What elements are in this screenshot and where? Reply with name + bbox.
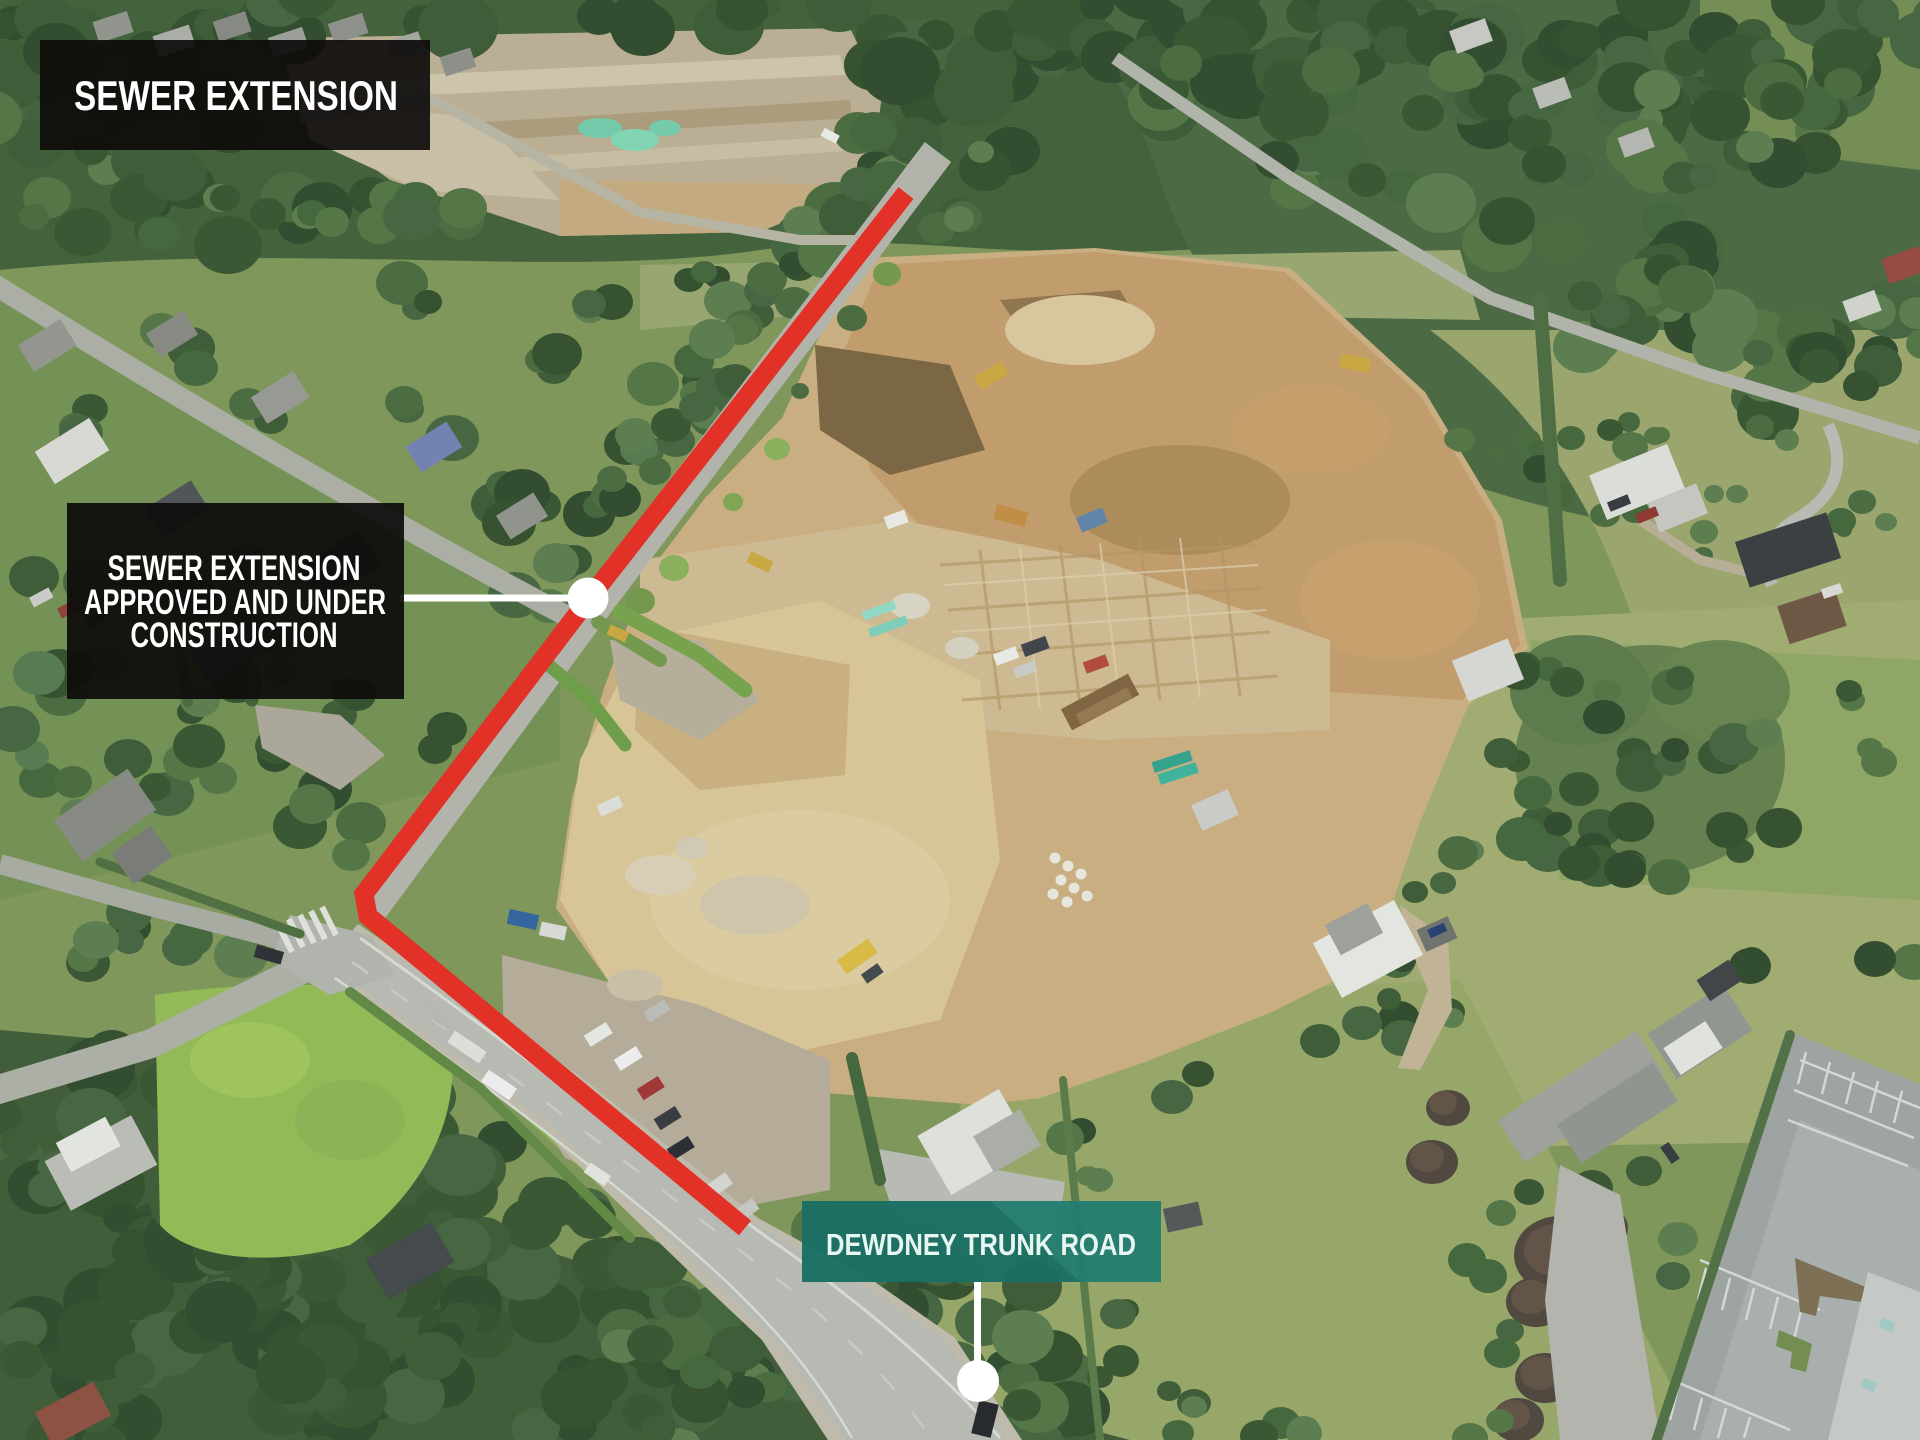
svg-text:DEWDNEY TRUNK ROAD: DEWDNEY TRUNK ROAD <box>826 1227 1136 1262</box>
svg-text:SEWER EXTENSION: SEWER EXTENSION <box>74 72 398 119</box>
svg-text:CONSTRUCTION: CONSTRUCTION <box>131 616 338 655</box>
